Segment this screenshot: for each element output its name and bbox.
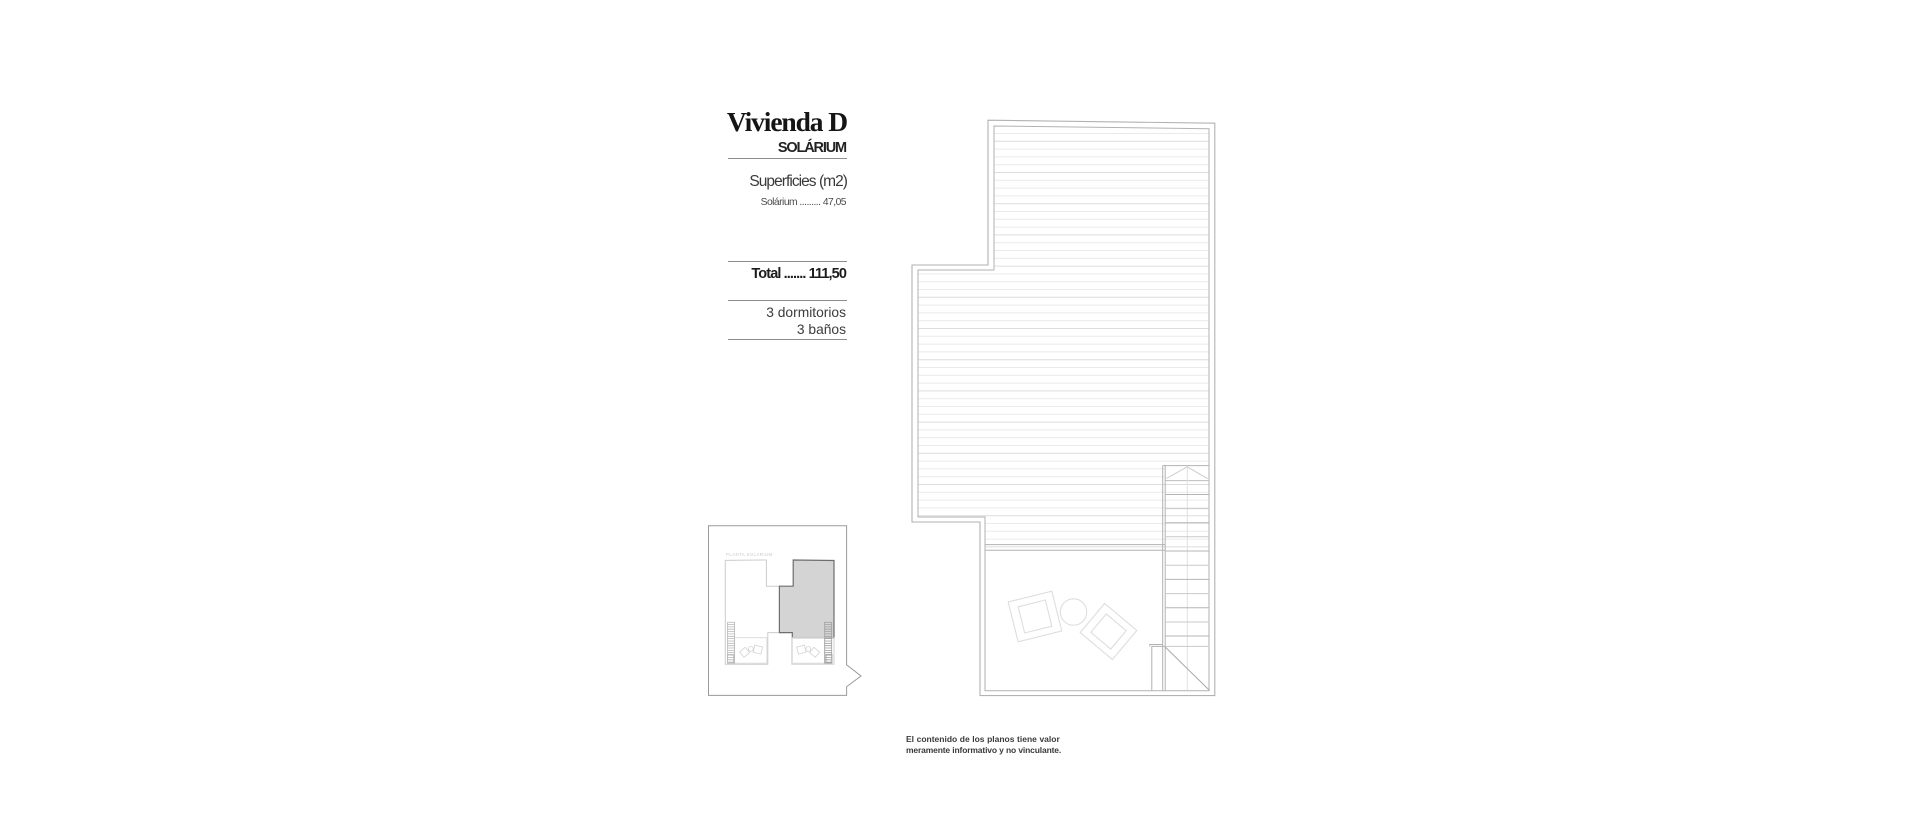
svg-text:PLANTA SOLARIUM: PLANTA SOLARIUM bbox=[726, 552, 773, 557]
